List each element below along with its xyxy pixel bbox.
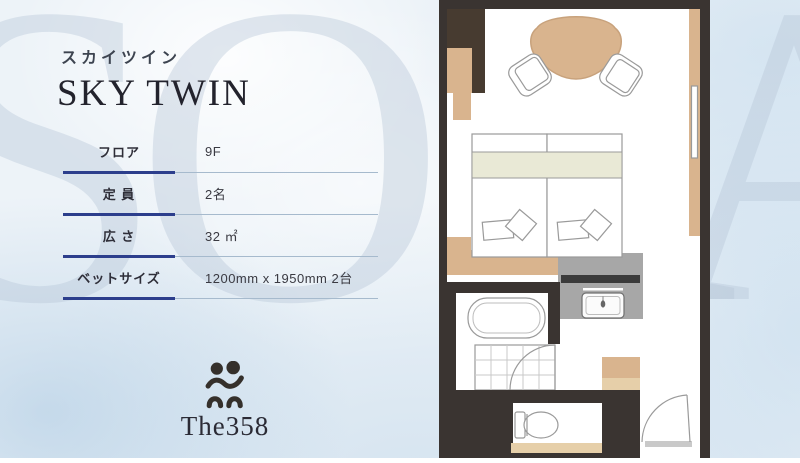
spec-row-capacity: 定 員 2名	[63, 173, 378, 215]
window-counter	[689, 9, 700, 236]
sky-twin-floor-plan	[437, 0, 712, 458]
shower-floor	[475, 345, 555, 390]
spec-value: 2名	[205, 184, 226, 203]
spec-row-bedsize: ベットサイズ 1200mm x 1950mm 2台	[63, 257, 378, 299]
hotel-logo-text: The358	[150, 411, 300, 442]
spec-table: フロア 9F 定 員 2名 広 さ 32 ㎡ ベットサイズ 1200mm x 1…	[63, 131, 378, 299]
room-info-panel: スカイツイン SKY TWIN フロア 9F 定 員 2名 広 さ 32 ㎡ ベ…	[0, 0, 437, 458]
spec-value: 1200mm x 1950mm 2台	[205, 268, 353, 287]
spec-value: 32 ㎡	[205, 226, 238, 245]
spec-value: 9F	[205, 144, 221, 159]
sink-icon	[582, 293, 624, 318]
vanity-counter	[558, 253, 643, 319]
toilet-icon	[515, 412, 558, 438]
room-name-en: SKY TWIN	[57, 72, 251, 115]
floor-plan	[437, 0, 712, 458]
luggage-bench	[602, 357, 640, 390]
spec-label: 定 員	[63, 184, 175, 203]
spec-row-floor: フロア 9F	[63, 131, 378, 173]
spec-label: フロア	[63, 142, 175, 161]
bathtub	[468, 298, 545, 338]
hotel-logo: The358	[150, 361, 300, 442]
spec-label: ベットサイズ	[63, 268, 175, 287]
two-people-icon	[202, 361, 248, 409]
twin-beds	[472, 134, 622, 257]
bed-runner	[472, 152, 622, 178]
spec-label: 広 さ	[63, 226, 175, 245]
room-name-ja: スカイツイン	[61, 44, 181, 68]
spec-row-area: 広 さ 32 ㎡	[63, 215, 378, 257]
